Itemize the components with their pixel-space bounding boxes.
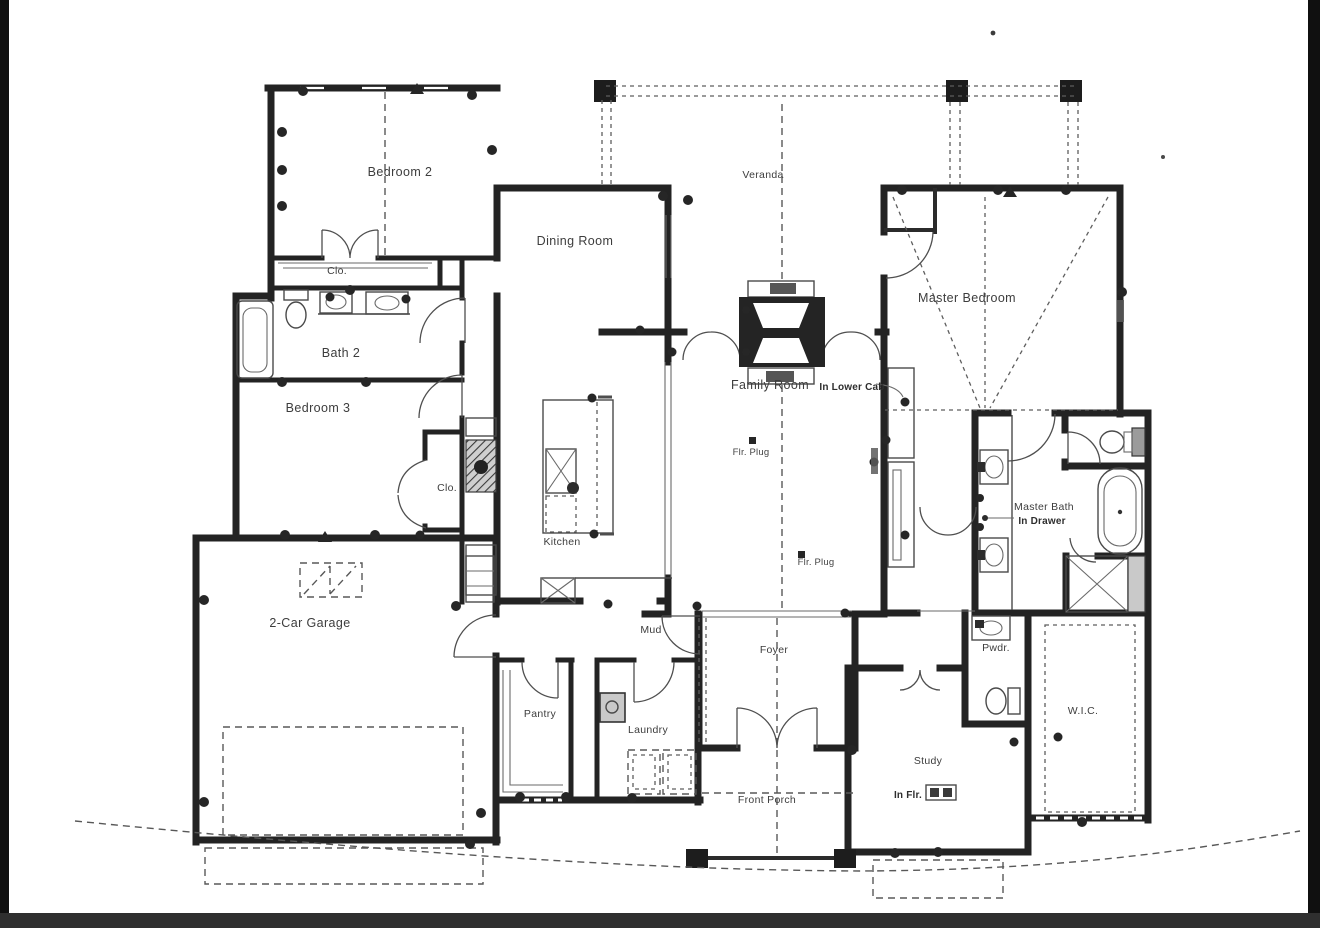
room-label-garage: 2-Car Garage (269, 616, 350, 630)
bathtub-icon (1098, 468, 1142, 554)
scan-left-edge (0, 0, 9, 928)
annotation-flr-plug-1: Flr. Plug (733, 447, 770, 458)
room-label-master-bedroom: Master Bedroom (918, 291, 1016, 305)
in-floor-outlet-box (926, 785, 956, 800)
toilet-icon (1100, 428, 1145, 456)
hall-cabinets (888, 368, 914, 567)
annotation-flr-plug-2: Flr. Plug (798, 557, 835, 568)
exterior-walls (196, 80, 1148, 868)
scan-speck (991, 31, 996, 36)
scan-right-edge (1308, 0, 1320, 928)
toilet-icon (986, 688, 1020, 714)
bathtub-icon (237, 301, 273, 378)
closet-shelf (278, 263, 432, 268)
room-label-closet-b2: Clo. (327, 265, 347, 277)
room-label-study: Study (914, 755, 943, 767)
room-label-bath-2: Bath 2 (322, 346, 361, 360)
room-label-dining-room: Dining Room (537, 234, 614, 248)
bath2-fixtures (237, 290, 410, 378)
laundry-sink-icon (600, 693, 625, 722)
floor-plan-drawing: Bedroom 2 Clo. Bath 2 Bedroom 3 Clo. Din… (0, 0, 1320, 928)
room-label-bedroom-2: Bedroom 2 (368, 165, 433, 179)
attic-access-icon (300, 563, 362, 597)
powder-fixtures (972, 616, 1020, 714)
floor-plan-page: Bedroom 2 Clo. Bath 2 Bedroom 3 Clo. Din… (0, 0, 1320, 928)
room-label-mud: Mud (640, 624, 661, 636)
shower-icon (1066, 556, 1145, 612)
room-label-foyer: Foyer (760, 644, 789, 656)
outlet-symbols (199, 83, 1127, 858)
room-label-pantry: Pantry (524, 708, 557, 720)
scan-bottom-edge (0, 913, 1320, 928)
room-label-front-porch: Front Porch (738, 794, 796, 806)
room-label-kitchen: Kitchen (543, 536, 580, 548)
toilet-icon (284, 290, 308, 328)
water-heater-icon (466, 418, 496, 595)
fireplace-icon (739, 281, 825, 384)
scan-speck (1161, 155, 1165, 159)
room-label-wic: W.I.C. (1068, 705, 1098, 717)
room-label-powder: Pwdr. (982, 642, 1010, 654)
room-label-family-room: Family Room (731, 378, 809, 392)
kitchen-sink-icon (546, 449, 579, 494)
annotation-in-flr: In Flr. (894, 790, 922, 801)
room-label-veranda: Veranda (742, 169, 783, 181)
vanity-sink-icon (977, 450, 1008, 572)
master-bath-fixtures (977, 415, 1145, 612)
washer-dryer-icon (628, 750, 696, 794)
room-label-bedroom-3: Bedroom 3 (286, 401, 351, 415)
sink-icon (972, 616, 1010, 640)
kitchen-island (543, 397, 614, 534)
annotation-in-lower-cab: In Lower Cab (819, 382, 884, 393)
room-label-laundry: Laundry (628, 724, 668, 736)
room-label-closet-hall: Clo. (437, 482, 457, 494)
room-label-master-bath: Master Bath (1014, 501, 1074, 513)
annotation-in-drawer: In Drawer (1018, 516, 1065, 527)
